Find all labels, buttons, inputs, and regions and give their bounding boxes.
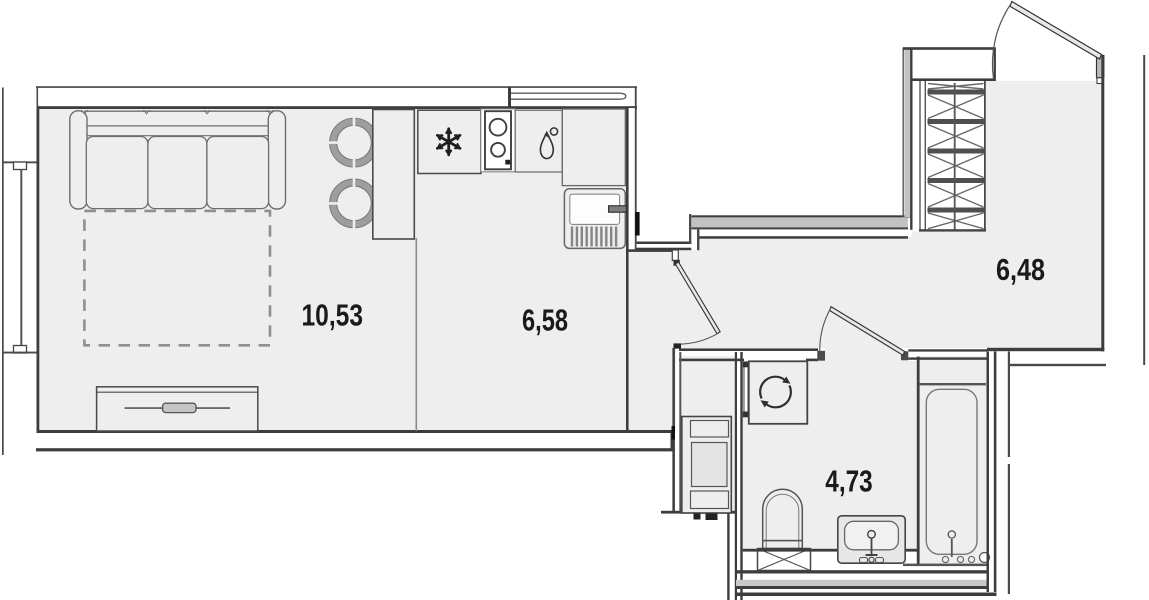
svg-text:10,53: 10,53 (302, 298, 364, 333)
svg-text:4,73: 4,73 (825, 463, 872, 498)
svg-text:6,58: 6,58 (522, 303, 568, 338)
svg-text:6,48: 6,48 (996, 252, 1045, 287)
